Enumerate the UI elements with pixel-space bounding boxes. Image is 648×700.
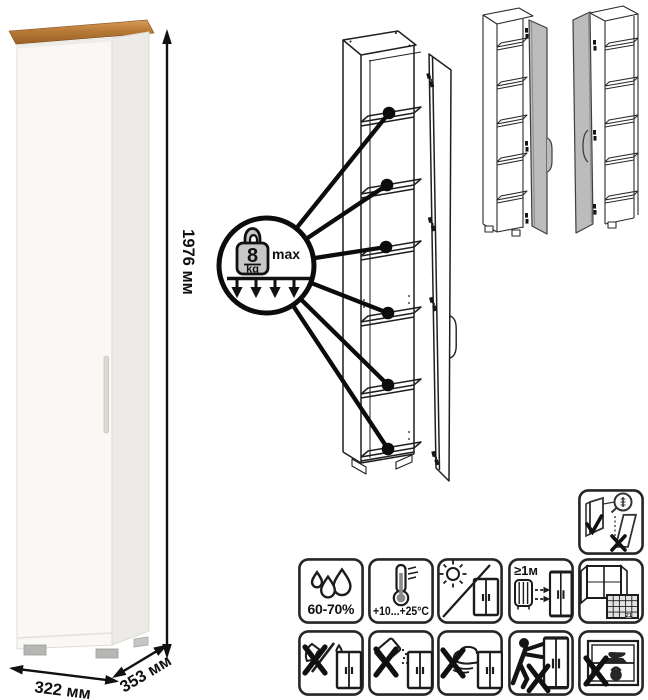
wardrobe-icon: [550, 572, 572, 616]
cabinet-side-panel: [112, 32, 149, 645]
temperature-label: +10...+25°C: [373, 604, 429, 618]
width-dimension-label: 322 мм: [33, 678, 91, 700]
no-dragging-icon: [508, 630, 574, 696]
care-icon-no-dragging: [508, 630, 574, 696]
load-unit: kg: [246, 264, 259, 276]
door-handle-groove: [104, 356, 109, 433]
variant-hinges: [593, 40, 597, 215]
wardrobe-infographic: 1976 мм 322 мм 353 мм: [0, 0, 648, 700]
wardrobe-icon: [408, 652, 432, 688]
thermometer-icon: +10...+25°C: [368, 558, 434, 624]
care-icon-temperature: +10...+25°C: [368, 558, 434, 624]
wardrobe-icon: [544, 638, 568, 688]
radiator-distance-icon: ≥1м: [508, 558, 574, 624]
care-icon-humidity: 60-70%: [298, 558, 364, 624]
care-icon-no-abrasives: [368, 630, 434, 696]
care-icon-distance-from-heat: ≥1м: [508, 558, 574, 624]
shelf-load-diagram: 8 kg max: [200, 0, 470, 540]
wardrobe-icon: [478, 652, 502, 688]
no-axe-icon: [298, 630, 364, 696]
door-handle: [450, 316, 456, 358]
distance-label: ≥1м: [514, 563, 538, 578]
anchor-to-wall-icon: [578, 489, 644, 555]
shelf-callout-dots: [380, 107, 396, 456]
care-icon-ventilation: 21: [578, 558, 644, 624]
cabinet-photo: 1976 мм 322 мм 353 мм: [0, 0, 200, 700]
open-window-calendar-icon: 21: [578, 558, 644, 624]
calendar-day-label: 21: [626, 613, 632, 619]
care-icon-no-direct-sunlight: [437, 558, 503, 624]
care-icon-no-overloading: [578, 630, 644, 696]
load-limit-callout: 8 kg max: [219, 218, 314, 313]
door-variant-left-drawing: [560, 2, 648, 245]
calendar-icon: 21: [607, 595, 638, 619]
care-icon-no-wet-cleaning: [437, 630, 503, 696]
wardrobe-icon: [474, 579, 498, 615]
humidity-icon: 60-70%: [298, 558, 364, 624]
height-dimension-label: 1976 мм: [179, 229, 197, 295]
width-dimension-arrow: 322 мм: [6, 663, 120, 700]
open-door: [429, 54, 451, 481]
variant-hinges: [525, 28, 529, 224]
no-wet-sponge-icon: [437, 630, 503, 696]
cabinet-door-front: [17, 38, 112, 649]
no-overload-icon: [578, 630, 644, 696]
sunlight-icon: [437, 558, 503, 624]
height-dimension-arrow: 1976 мм: [162, 29, 197, 659]
variant-handle: [547, 138, 552, 172]
no-abrasive-powder-icon: [368, 630, 434, 696]
humidity-label: 60-70%: [308, 601, 356, 617]
wall-anchor-warning-icon: [578, 489, 644, 555]
care-icon-no-sharp-tools: [298, 630, 364, 696]
wardrobe-icon: [337, 652, 361, 688]
door-variant-right-drawing: [470, 2, 560, 245]
load-qualifier: max: [272, 246, 300, 262]
